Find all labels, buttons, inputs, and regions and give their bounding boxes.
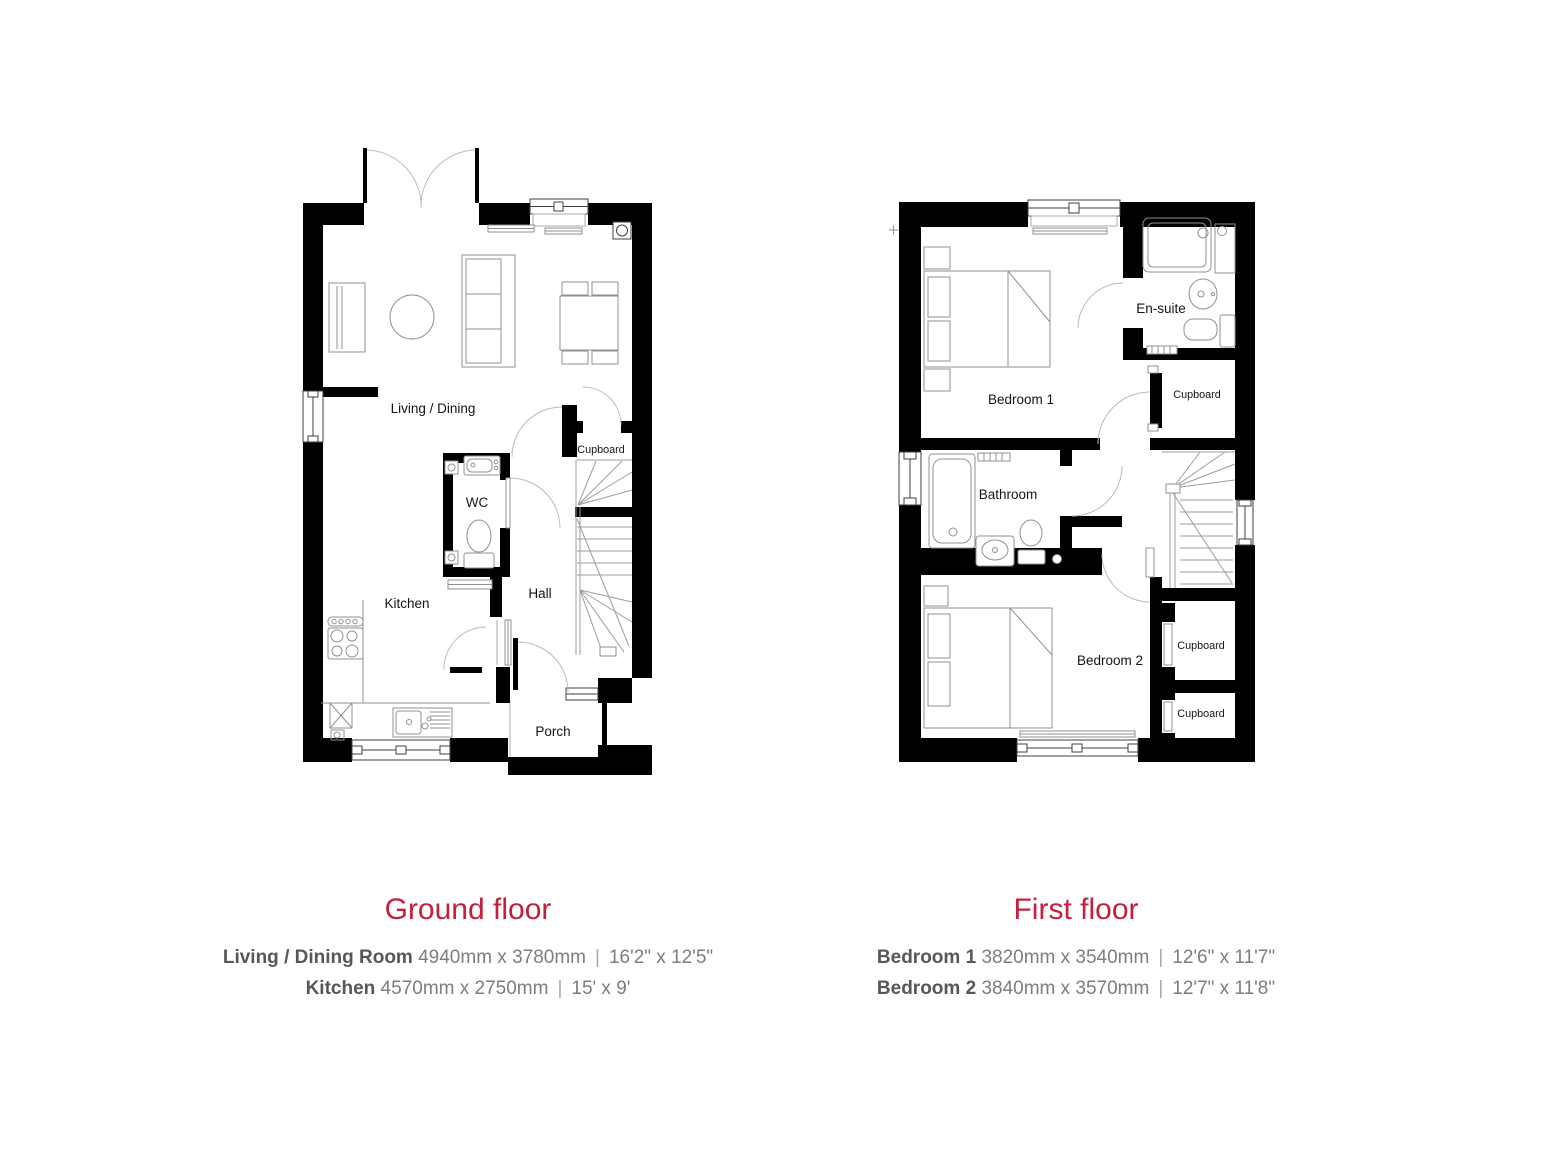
metric-size: 4570mm x 2750mm — [381, 978, 549, 999]
ground-floor-caption: Ground floor Living / Dining Room 4940mm… — [158, 893, 778, 1004]
bedroom2-furniture — [924, 586, 1052, 728]
dimension-row: Bedroom 2 3840mm x 3570mm|12'7" x 11'8" — [766, 973, 1386, 1004]
boiler-icon — [613, 222, 631, 239]
radiator — [488, 225, 534, 232]
separator: | — [586, 947, 609, 968]
imperial-size: 12'6" x 11'7" — [1172, 947, 1275, 968]
dimension-row: Bedroom 1 3820mm x 3540mm|12'6" x 11'7" — [766, 942, 1386, 973]
metric-size: 3820mm x 3540mm — [981, 947, 1149, 968]
window-living-top — [530, 199, 588, 226]
ensuite-fixtures — [1143, 218, 1235, 354]
label-living-dining: Living / Dining — [391, 401, 476, 416]
ground-floor-dimensions: Living / Dining Room 4940mm x 3780mm|16'… — [158, 942, 778, 1004]
first-stairs — [1162, 452, 1235, 588]
radiator — [1020, 731, 1135, 737]
imperial-size: 16'2" x 12'5" — [609, 947, 713, 968]
label-porch: Porch — [535, 724, 570, 739]
radiator — [1033, 228, 1107, 234]
metric-size: 3840mm x 3570mm — [981, 978, 1149, 999]
first-floor-caption: First floor Bedroom 1 3820mm x 3540mm|12… — [766, 893, 1386, 1004]
label-bathroom: Bathroom — [979, 487, 1038, 502]
separator: | — [548, 978, 571, 999]
radiator — [448, 580, 492, 589]
towel-rail — [1147, 346, 1177, 354]
ground-stairs — [576, 460, 632, 656]
first-floor-title: First floor — [766, 893, 1386, 927]
label-ensuite: En-suite — [1136, 301, 1186, 316]
label-cupboard-landing: Cupboard — [1173, 389, 1220, 401]
room-name: Living / Dining Room — [223, 947, 413, 968]
ground-walls — [303, 203, 652, 775]
label-kitchen: Kitchen — [384, 596, 429, 611]
room-name: Kitchen — [306, 978, 376, 999]
ground-floor-title: Ground floor — [158, 893, 778, 927]
dimension-row: Kitchen 4570mm x 2750mm|15' x 9' — [158, 973, 778, 1004]
window-bedroom2-bottom — [1017, 731, 1138, 756]
french-doors — [363, 148, 479, 208]
separator: | — [1149, 978, 1172, 999]
living-furniture — [329, 225, 618, 367]
first-floor-plan: Bedroom 1 En-suite Cupboard Bathroom Bed… — [889, 200, 1255, 762]
label-cupboard-mid: Cupboard — [1177, 640, 1224, 652]
porch-sidelight — [566, 688, 598, 700]
imperial-size: 12'7" x 11'8" — [1172, 978, 1275, 999]
label-wc: WC — [466, 495, 489, 510]
ground-floor-plan: Living / Dining Cupboard WC Kitchen Hall… — [303, 148, 652, 775]
bedroom1-furniture — [924, 247, 1050, 391]
imperial-size: 15' x 9' — [571, 978, 630, 999]
label-ground-cupboard: Cupboard — [577, 444, 624, 456]
first-floor-dimensions: Bedroom 1 3820mm x 3540mm|12'6" x 11'7" … — [766, 942, 1386, 1004]
window-kitchen-bottom — [352, 740, 450, 760]
room-name: Bedroom 1 — [877, 947, 976, 968]
window-bedroom1-top — [1028, 200, 1120, 234]
window-bathroom-left — [899, 452, 921, 505]
label-bedroom1: Bedroom 1 — [988, 392, 1054, 407]
hall-radiator — [505, 620, 511, 665]
sink-unit — [393, 708, 452, 737]
window-landing-right — [1237, 500, 1253, 545]
wc-fixtures — [445, 456, 500, 568]
separator: | — [1149, 947, 1172, 968]
floorplan-page: Living / Dining Cupboard WC Kitchen Hall… — [0, 0, 1546, 1157]
label-cupboard-bottom: Cupboard — [1177, 708, 1224, 720]
level-marker-icon — [889, 226, 898, 235]
appliance-space — [330, 703, 352, 740]
dimension-row: Living / Dining Room 4940mm x 3780mm|16'… — [158, 942, 778, 973]
radiator — [545, 228, 582, 234]
towel-rail — [978, 453, 1010, 461]
label-bedroom2: Bedroom 2 — [1077, 653, 1143, 668]
window-living-left — [303, 391, 323, 442]
room-name: Bedroom 2 — [877, 978, 976, 999]
label-hall: Hall — [528, 586, 551, 601]
metric-size: 4940mm x 3780mm — [418, 947, 586, 968]
